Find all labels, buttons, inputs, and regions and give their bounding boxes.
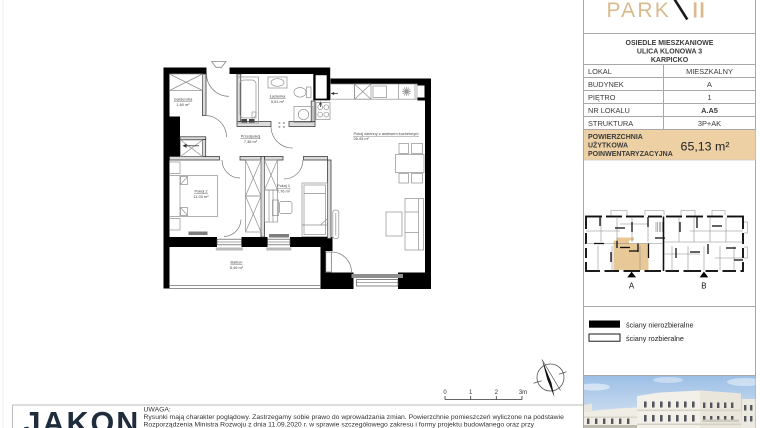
svg-text:Rysunki mają charakter poglądo: Rysunki mają charakter poglądowy. Zastrz… bbox=[144, 414, 565, 421]
svg-text:NR LOKALU: NR LOKALU bbox=[588, 106, 630, 115]
svg-text:KARPICKO: KARPICKO bbox=[651, 57, 689, 64]
svg-text:ściany nierozbieralne: ściany nierozbieralne bbox=[626, 320, 694, 329]
svg-text:7,76 m²: 7,76 m² bbox=[277, 188, 291, 193]
svg-text:LOKAL: LOKAL bbox=[588, 67, 612, 76]
svg-text:Rozporządzenia Ministra Rozwoj: Rozporządzenia Ministra Rozwoju z dnia 1… bbox=[144, 422, 535, 428]
svg-text:1: 1 bbox=[707, 93, 711, 102]
svg-text:UŻYTKOWA: UŻYTKOWA bbox=[588, 142, 628, 150]
svg-text:Pokój 1: Pokój 1 bbox=[277, 183, 290, 188]
svg-text:STRUKTURA: STRUKTURA bbox=[588, 119, 633, 128]
svg-text:OSIEDLE MIESZKANIOWE: OSIEDLE MIESZKANIOWE bbox=[626, 40, 714, 47]
svg-text:BUDYNEK: BUDYNEK bbox=[588, 80, 624, 89]
svg-text:Pokój 2: Pokój 2 bbox=[195, 189, 208, 194]
svg-text:ULICA KLONOWA 3: ULICA KLONOWA 3 bbox=[637, 49, 702, 56]
svg-text:MIESZKALNY: MIESZKALNY bbox=[686, 67, 733, 76]
svg-text:JAKON: JAKON bbox=[24, 406, 141, 428]
svg-text:B: B bbox=[701, 282, 706, 291]
svg-text:3P+AK: 3P+AK bbox=[698, 119, 721, 128]
svg-text:11,03 m²: 11,03 m² bbox=[193, 194, 209, 199]
svg-text:3m: 3m bbox=[519, 390, 527, 396]
svg-text:65,13 m²: 65,13 m² bbox=[681, 140, 730, 154]
svg-text:A: A bbox=[629, 282, 635, 291]
svg-text:PARK: PARK bbox=[607, 0, 671, 22]
svg-text:A: A bbox=[707, 80, 712, 89]
svg-text:1,60 m²: 1,60 m² bbox=[176, 102, 190, 107]
svg-text:UWAGA:: UWAGA: bbox=[144, 407, 171, 414]
svg-text:7,36 m²: 7,36 m² bbox=[244, 139, 258, 144]
svg-text:ściany rozbieralne: ściany rozbieralne bbox=[626, 334, 684, 343]
svg-text:5,51 m²: 5,51 m² bbox=[271, 99, 285, 104]
svg-text:POWIERZCHNIA: POWIERZCHNIA bbox=[588, 134, 643, 141]
svg-text:Przedpokój: Przedpokój bbox=[241, 134, 261, 139]
svg-text:26,45 m²: 26,45 m² bbox=[354, 136, 370, 141]
svg-text:5,49 m²: 5,49 m² bbox=[230, 265, 244, 270]
svg-text:A.A5: A.A5 bbox=[701, 106, 718, 115]
svg-text:Garderoba: Garderoba bbox=[174, 97, 193, 102]
svg-text:Łazienka: Łazienka bbox=[270, 94, 286, 99]
svg-text:Balkon: Balkon bbox=[231, 260, 243, 265]
svg-text:POINWENTARYZACYJNA: POINWENTARYZACYJNA bbox=[588, 151, 673, 158]
svg-text:PIĘTRO: PIĘTRO bbox=[588, 93, 616, 102]
